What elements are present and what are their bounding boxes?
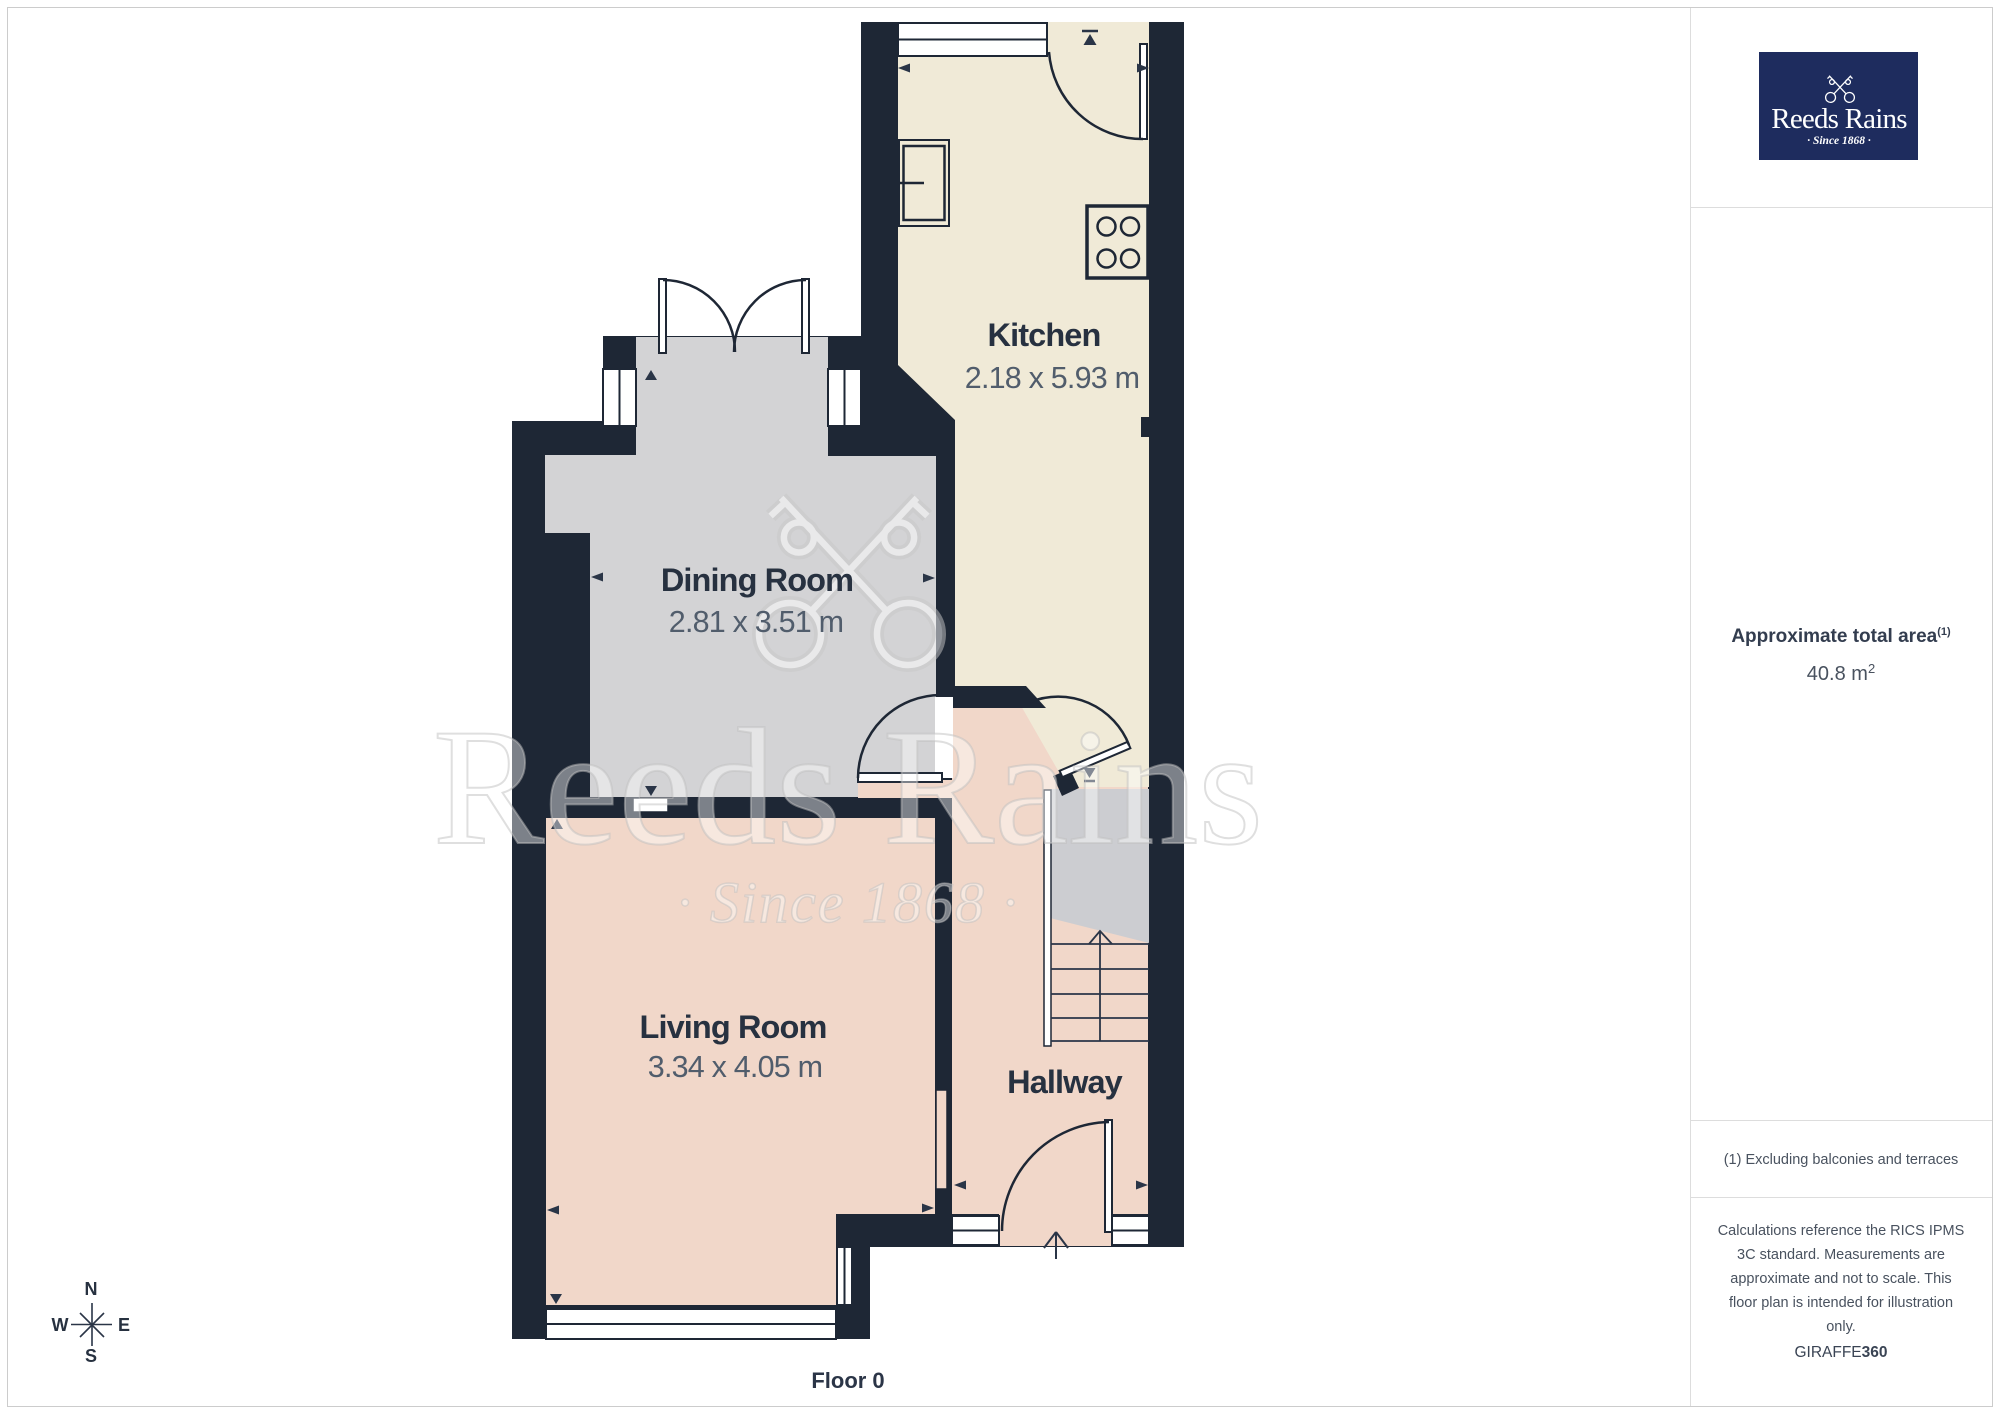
- svg-text:floor plan is intended for ill: floor plan is intended for illustration: [1729, 1295, 1953, 1311]
- svg-text:3.34 x 4.05 m: 3.34 x 4.05 m: [648, 1050, 822, 1084]
- svg-text:Reeds Rains: Reeds Rains: [1771, 103, 1907, 135]
- svg-text:only.: only.: [1826, 1319, 1856, 1335]
- svg-text:Reeds Rains: Reeds Rains: [433, 695, 1263, 880]
- svg-text:2.18 x 5.93 m: 2.18 x 5.93 m: [965, 361, 1139, 395]
- svg-text:E: E: [118, 1315, 130, 1335]
- svg-text:Dining Room: Dining Room: [661, 562, 853, 598]
- svg-text:· Since 1868 ·: · Since 1868 ·: [677, 870, 1019, 935]
- svg-text:3C standard. Measurements are: 3C standard. Measurements are: [1737, 1247, 1945, 1263]
- svg-text:40.8 m2: 40.8 m2: [1807, 661, 1875, 685]
- svg-text:Floor 0: Floor 0: [811, 1368, 884, 1393]
- svg-text:approximate and not to scale.: approximate and not to scale. This: [1730, 1271, 1951, 1287]
- svg-text:Approximate total area(1): Approximate total area(1): [1731, 626, 1951, 647]
- svg-text:Living Room: Living Room: [640, 1009, 827, 1045]
- svg-text:S: S: [85, 1346, 97, 1366]
- svg-text:W: W: [52, 1315, 69, 1335]
- svg-text:GIRAFFE360: GIRAFFE360: [1794, 1344, 1887, 1361]
- svg-text:(1) Excluding balconies and te: (1) Excluding balconies and terraces: [1724, 1152, 1959, 1168]
- svg-text:Hallway: Hallway: [1007, 1064, 1123, 1100]
- svg-text:· Since 1868 ·: · Since 1868 ·: [1807, 135, 1871, 147]
- svg-text:Kitchen: Kitchen: [988, 317, 1101, 353]
- svg-text:N: N: [85, 1279, 98, 1299]
- svg-text:2.81 x 3.51 m: 2.81 x 3.51 m: [669, 605, 843, 639]
- svg-text:Calculations reference the RIC: Calculations reference the RICS IPMS: [1718, 1223, 1965, 1239]
